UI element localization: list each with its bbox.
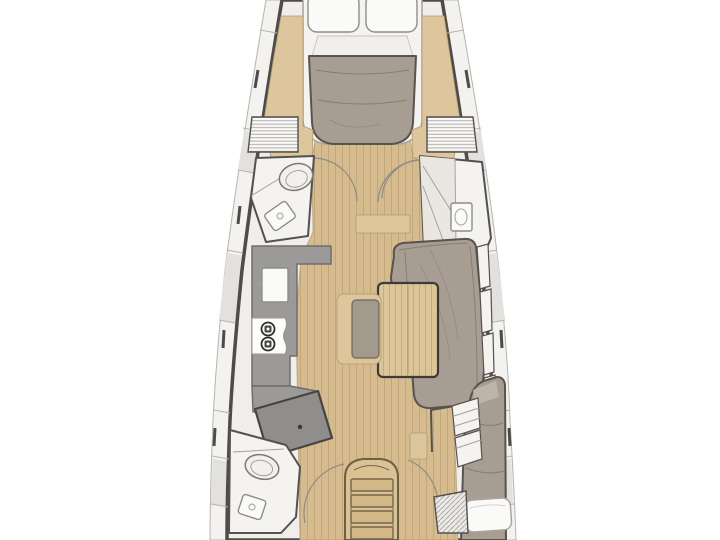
- shelf: [410, 433, 427, 459]
- pillow: [366, 0, 417, 32]
- galley-sink: [262, 268, 288, 302]
- stair-step: [351, 495, 393, 507]
- slatted-locker-starboard: [427, 117, 477, 152]
- forward-head: [251, 156, 316, 242]
- burner: [262, 323, 275, 336]
- bench-cushion: [352, 300, 379, 358]
- stair-step: [351, 479, 393, 491]
- berth-pillow: [464, 497, 512, 532]
- desk-knob: [298, 425, 302, 429]
- mattress: [309, 56, 416, 144]
- sheet-fold: [312, 36, 413, 56]
- corridor-step: [356, 215, 410, 233]
- pillow: [308, 0, 359, 32]
- burner: [262, 338, 275, 351]
- yacht-floor-plan: [0, 0, 720, 540]
- entry-steps: [452, 398, 482, 467]
- slatted-locker-port: [248, 117, 298, 152]
- floor-plan-canvas: [0, 0, 720, 540]
- stair-step: [351, 527, 393, 539]
- floor-grate: [434, 491, 468, 533]
- companionway-stairs: [345, 459, 398, 540]
- forward-cabin: [248, 0, 477, 158]
- sink: [451, 203, 472, 231]
- stair-step: [351, 511, 393, 523]
